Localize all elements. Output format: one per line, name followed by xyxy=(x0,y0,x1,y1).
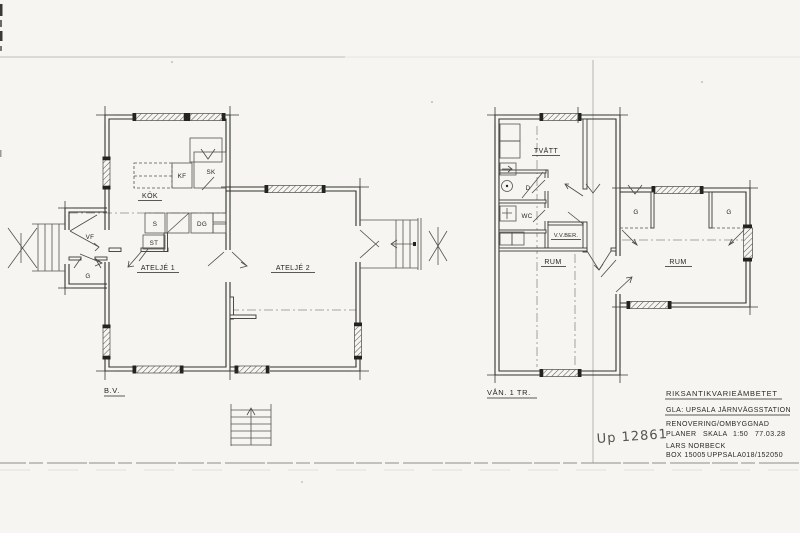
title-address-box: BOX 15005 xyxy=(666,452,706,459)
title-project: GLA: UPSALA JÄRNVÄGSSTATION xyxy=(666,406,791,414)
room-label-sk: SK xyxy=(207,169,216,176)
wc-fixture xyxy=(500,206,516,221)
room-label-atelje1: ATELJÉ 1 xyxy=(141,263,175,272)
floor-plan-drawing: KF SK KÖK S DG ST VF G ATELJÉ 1 ATELJÉ 2… xyxy=(0,0,800,533)
blueprint-scan: KF SK KÖK S DG ST VF G ATELJÉ 1 ATELJÉ 2… xyxy=(0,0,800,533)
upper-wing-outer-wall xyxy=(620,188,750,307)
plan-caption-van1tr: VÅN. 1 TR. xyxy=(487,388,531,397)
title-work: RENOVERING/OMBYGGNAD xyxy=(666,421,769,428)
chimney xyxy=(190,138,222,162)
room-label-kf: KF xyxy=(178,173,187,180)
room-label-dg: DG xyxy=(197,221,207,228)
plan-caption-bv: B.V. xyxy=(104,386,120,395)
module-lines xyxy=(69,213,356,310)
module-ticks-upper xyxy=(487,107,758,383)
south-stair xyxy=(231,404,271,446)
vent-arrow xyxy=(201,149,215,159)
room-label-g-left: G xyxy=(633,209,638,216)
counter xyxy=(134,163,172,188)
title-address-phone: 018/152050 xyxy=(742,452,783,459)
room-label-vf: VF xyxy=(86,234,95,241)
upper-floor-plan: TVÄTT D WC V.V.BER. RUM RUM G G VÅN. 1 T… xyxy=(487,107,758,398)
title-scale-value: 1:50 xyxy=(733,431,748,438)
upper-fixtures xyxy=(500,124,543,245)
upper-windows xyxy=(540,112,754,378)
room-label-d: D xyxy=(526,185,531,192)
west-steps xyxy=(8,224,65,271)
title-address-city: UPPSALA xyxy=(707,452,742,459)
title-architect: LARS NORBECK xyxy=(666,443,726,450)
room-label-rum-right: RUM xyxy=(669,259,686,266)
wing-outer-wall xyxy=(226,187,360,371)
room-label-rum-left: RUM xyxy=(544,259,561,266)
room-label-g-right: G xyxy=(726,209,731,216)
room-label-s: S xyxy=(153,221,158,228)
room-label-g: G xyxy=(85,273,90,280)
title-scale-label: SKALA xyxy=(703,431,728,438)
east-door-mark xyxy=(429,227,447,265)
title-agency: RIKSANTIKVARIEÄMBETET xyxy=(666,389,778,398)
ground-floor-plan: KF SK KÖK S DG ST VF G ATELJÉ 1 ATELJÉ 2… xyxy=(8,106,447,446)
windows xyxy=(102,112,363,375)
handwritten-number: Up 12861 xyxy=(596,427,668,447)
room-label-kok: KÖK xyxy=(142,192,158,200)
room-label-wc: WC xyxy=(521,213,532,220)
title-block: RIKSANTIKVARIEÄMBETET GLA: UPSALA JÄRNVÄ… xyxy=(665,389,791,459)
room-label-tvatt: TVÄTT xyxy=(534,147,558,155)
east-terrace xyxy=(360,218,447,270)
room-label-vvber: V.V.BER. xyxy=(554,233,578,239)
laundry-machine xyxy=(500,124,520,141)
title-date: 77.03.28 xyxy=(755,431,785,438)
module-lines-upper xyxy=(537,126,744,367)
title-drawing-type: PLANER xyxy=(666,431,696,438)
room-label-atelje2: ATELJÉ 2 xyxy=(276,263,310,272)
room-label-st: ST xyxy=(150,240,159,247)
upper-interior-walls xyxy=(499,119,746,252)
wing-inner-wall xyxy=(226,191,356,367)
laundry-machine xyxy=(500,141,520,158)
